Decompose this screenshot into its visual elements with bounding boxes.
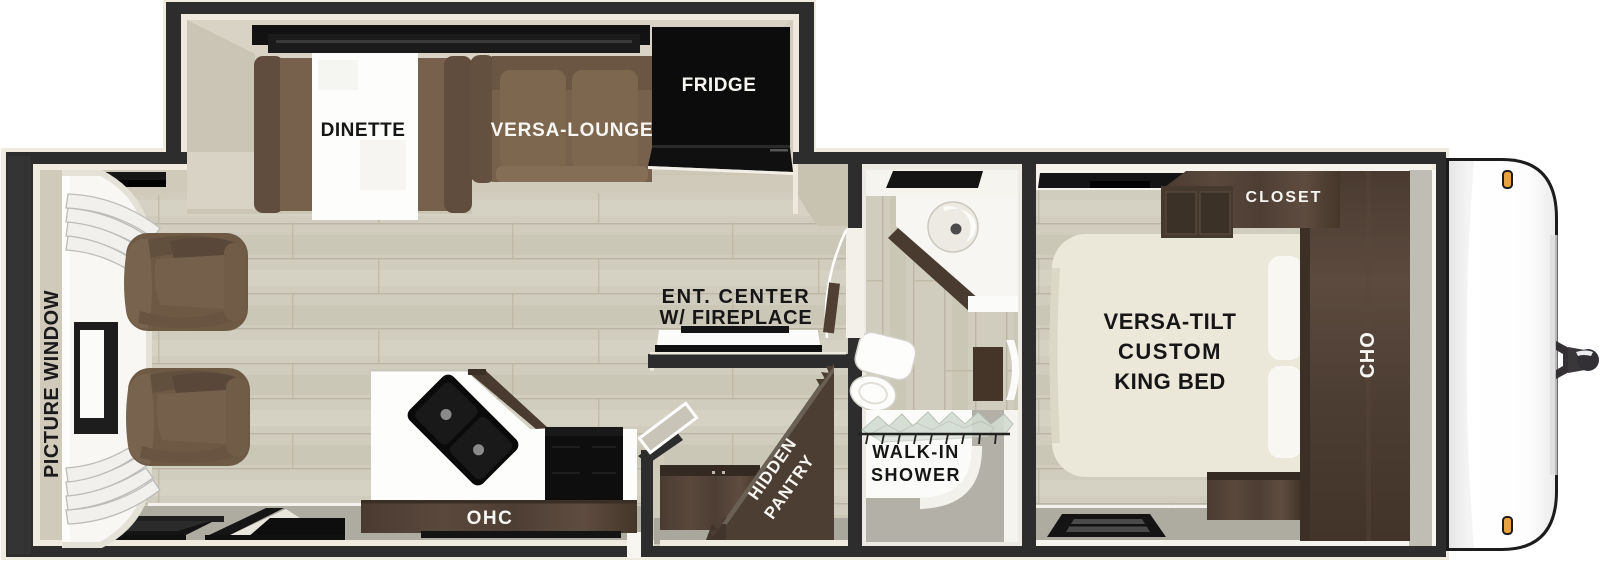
svg-text:DINETTE: DINETTE	[321, 120, 406, 141]
svg-text:C: C	[1357, 364, 1379, 378]
svg-text:VERSA-TILT: VERSA-TILT	[1104, 309, 1237, 334]
svg-text:VERSA-LOUNGE: VERSA-LOUNGE	[491, 120, 654, 141]
svg-text:KING BED: KING BED	[1114, 369, 1226, 394]
svg-text:W/ FIREPLACE: W/ FIREPLACE	[660, 307, 813, 329]
svg-text:CLOSET: CLOSET	[1246, 189, 1323, 206]
svg-text:WALK-IN: WALK-IN	[872, 442, 959, 462]
svg-text:CUSTOM: CUSTOM	[1118, 339, 1222, 364]
svg-text:O: O	[1357, 332, 1379, 348]
svg-text:OHC: OHC	[467, 508, 514, 529]
svg-text:H: H	[1357, 349, 1379, 363]
svg-text:ENT. CENTER: ENT. CENTER	[662, 286, 811, 308]
svg-text:PICTURE WINDOW: PICTURE WINDOW	[41, 290, 63, 478]
svg-text:FRIDGE: FRIDGE	[682, 75, 757, 96]
svg-text:SHOWER: SHOWER	[871, 465, 961, 485]
